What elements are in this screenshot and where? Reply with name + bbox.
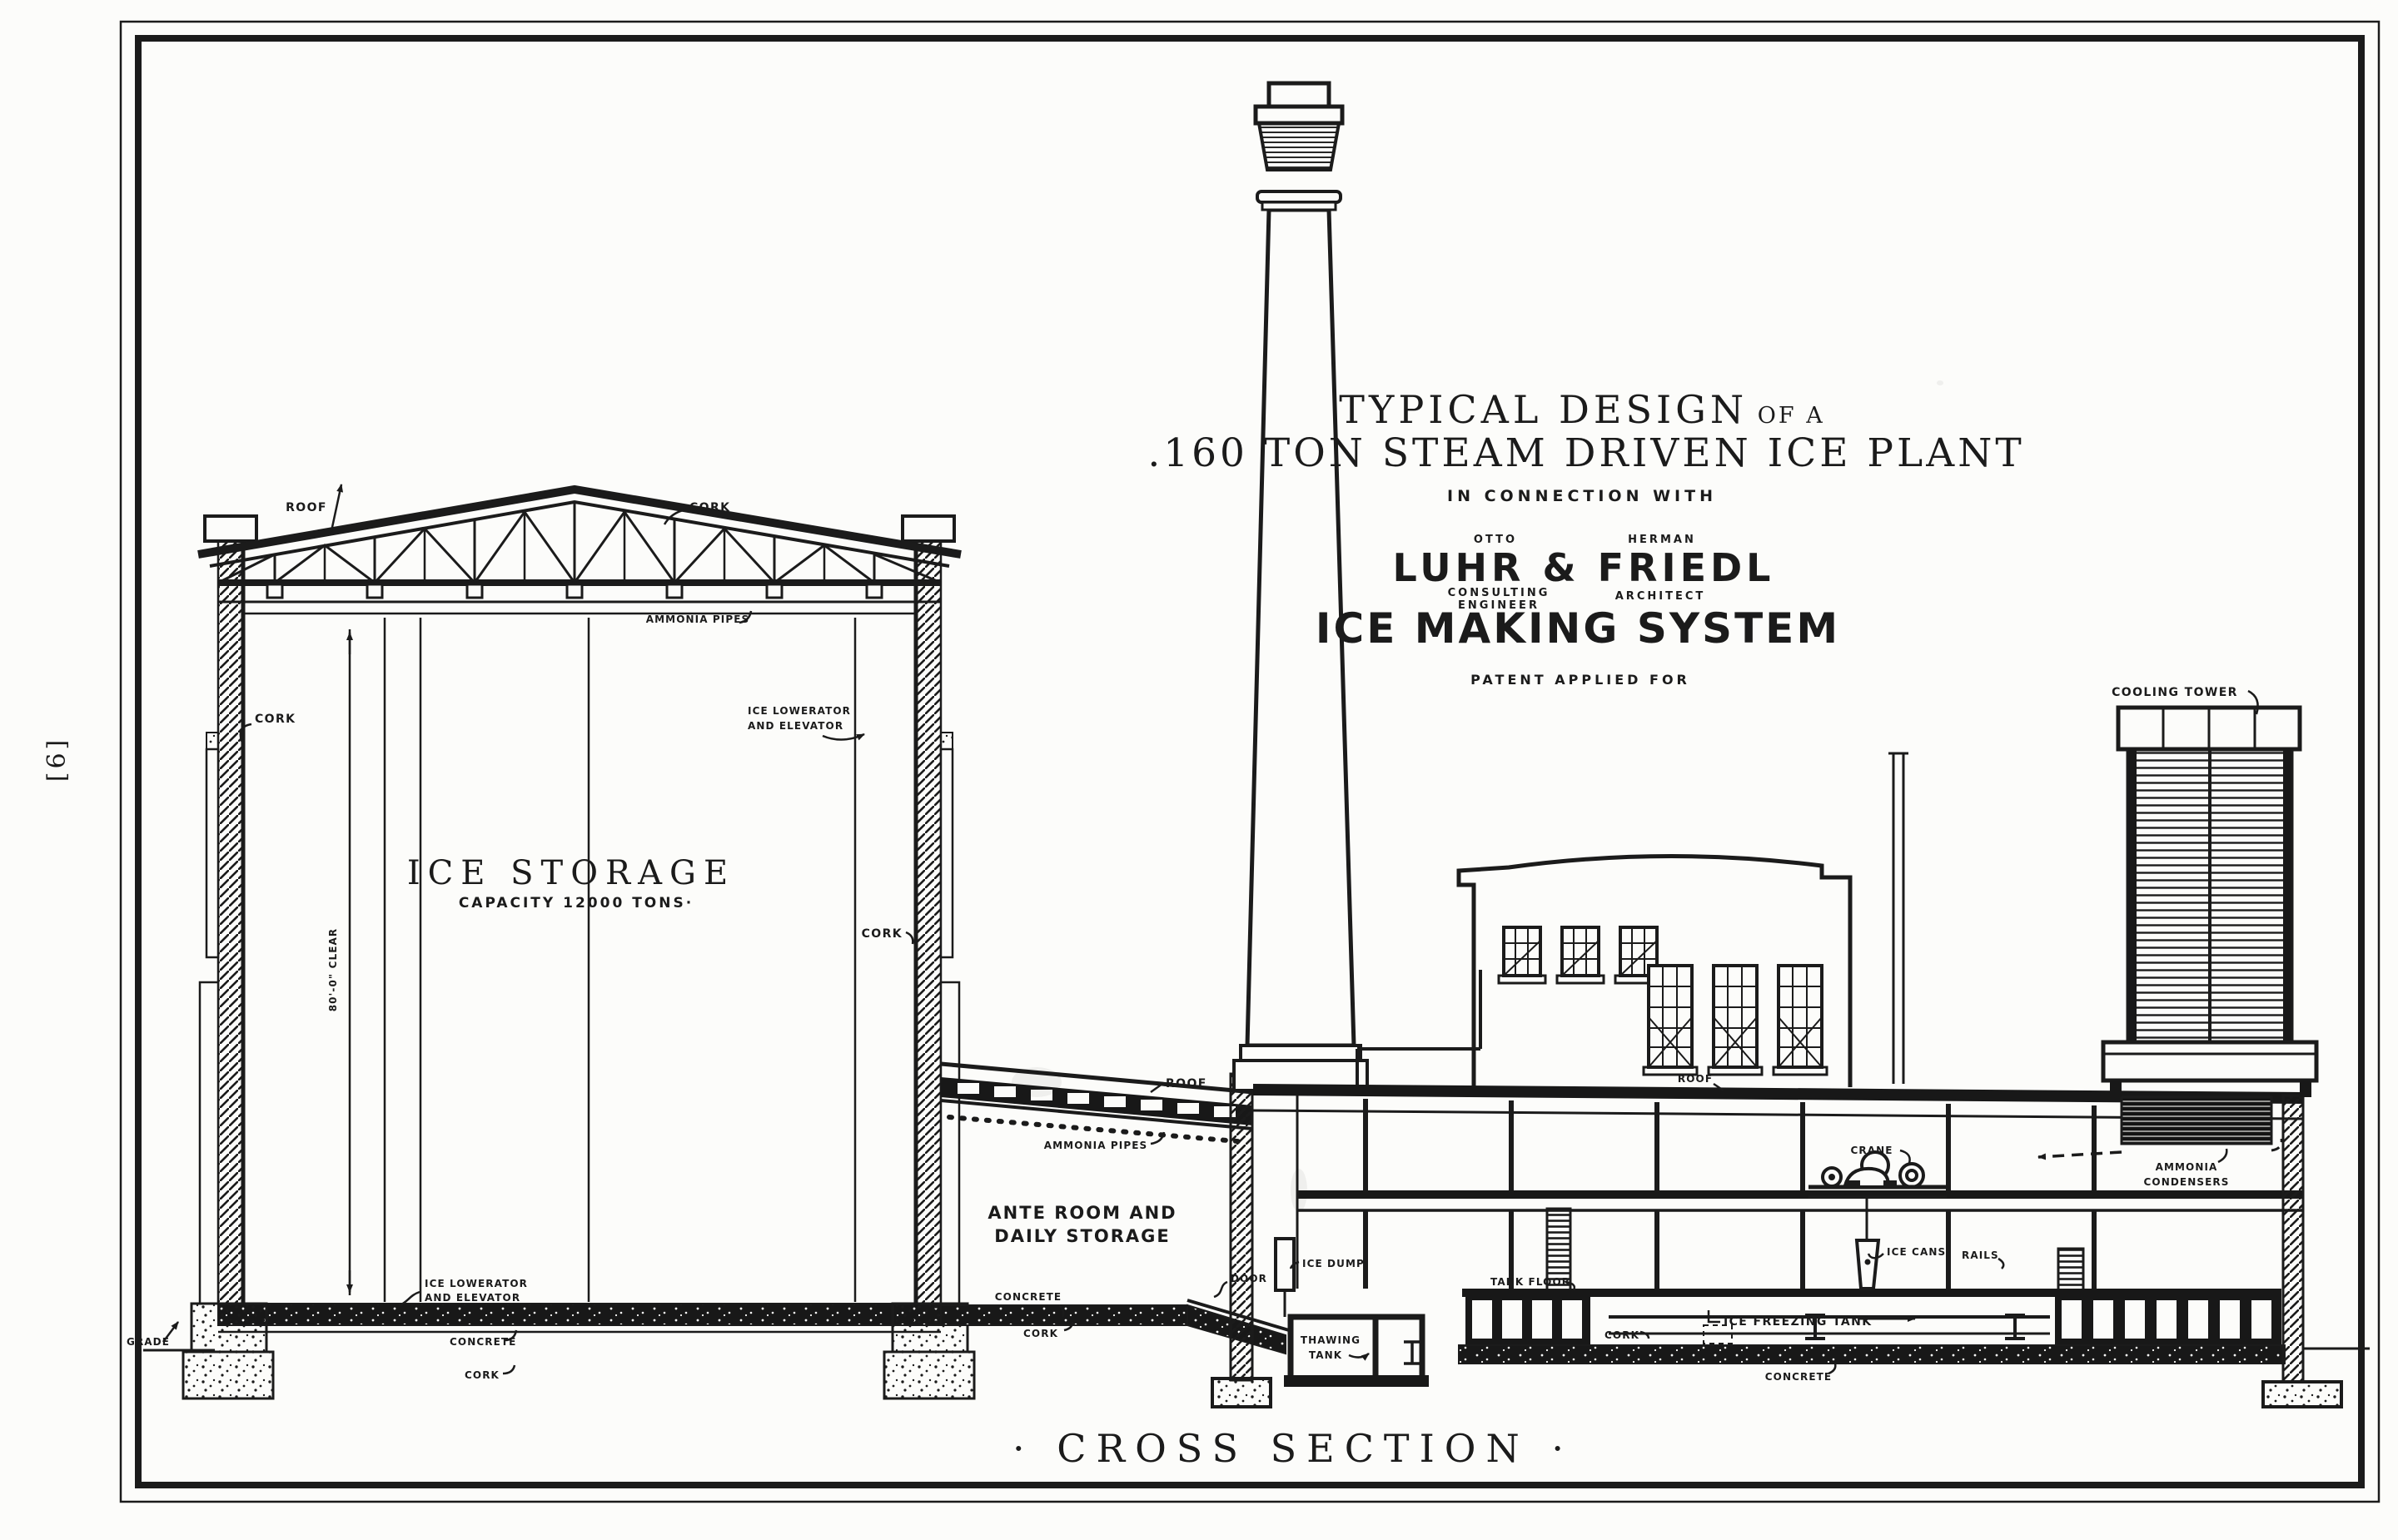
- thawing-tank-label-2: TANK: [1309, 1349, 1342, 1361]
- title-name-otto: OTTO: [1474, 534, 1517, 546]
- ante-ammonia-pipes-label: AMMONIA PIPES: [1044, 1140, 1148, 1151]
- title-name-herman: HERMAN: [1628, 534, 1696, 546]
- cork-right-label: CORK: [862, 927, 903, 941]
- ice-storage-capacity: CAPACITY 12000 TONS·: [459, 895, 694, 912]
- ante-roof-label: ROOF: [1166, 1077, 1207, 1090]
- large-windows: [1644, 966, 1827, 1075]
- cooling-tower-label: COOLING TOWER: [2112, 686, 2238, 699]
- title-firm: LUHR & FRIEDL: [1393, 545, 1775, 590]
- ice-storage-title: ICE STORAGE: [407, 854, 735, 892]
- ice-lowerator-bottom-2: AND ELEVATOR: [425, 1292, 520, 1304]
- crane-figure: [1808, 1152, 1947, 1197]
- cooling-tower: [2103, 691, 2316, 1097]
- plant-concrete-label: CONCRETE: [1765, 1371, 1832, 1383]
- rails-label: RAILS: [1962, 1249, 1999, 1261]
- cork-bottom-label: CORK: [465, 1369, 500, 1381]
- concrete-label-left: CONCRETE: [450, 1336, 516, 1348]
- title-system: ICE MAKING SYSTEM: [1316, 604, 1840, 653]
- title-role-architect: ARCHITECT: [1615, 590, 1706, 603]
- title-line-1: TYPICAL DESIGN OF A: [1339, 387, 1824, 432]
- ammonia-condensers-label-2: CONDENSERS: [2144, 1176, 2230, 1188]
- title-patent: PATENT APPLIED FOR: [1470, 672, 1690, 688]
- ice-freezing-tank-label: ICE FREEZING TANK: [1724, 1315, 1873, 1329]
- tank-floor-label: TANK FLOOR: [1490, 1276, 1570, 1288]
- small-windows: [1499, 927, 1662, 983]
- ice-lowerator-right-2: AND ELEVATOR: [748, 720, 843, 732]
- ice-dump-label: ICE DUMP: [1302, 1258, 1365, 1269]
- clear-height-label: 80'-0" CLEAR: [327, 928, 339, 1012]
- drawing-sheet: [6]: [0, 0, 2398, 1540]
- title-role-consulting: CONSULTING: [1448, 587, 1550, 599]
- ammonia-condensers-label-1: AMMONIA: [2156, 1161, 2218, 1173]
- crane-label: CRANE: [1850, 1145, 1893, 1156]
- ice-lowerator-bottom-1: ICE LOWERATOR: [425, 1278, 528, 1289]
- cork-top-label: CORK: [689, 501, 730, 514]
- roof-label: ROOF: [286, 501, 327, 514]
- sheet-caption: · CROSS SECTION ·: [1012, 1426, 1574, 1471]
- plant-cork-label: CORK: [1604, 1329, 1639, 1341]
- ante-room-name-1: ANTE ROOM AND: [988, 1203, 1177, 1223]
- ice-lowerator-right-1: ICE LOWERATOR: [748, 705, 851, 717]
- ammonia-pipes-label: AMMONIA PIPES: [646, 614, 750, 625]
- cork-left-label: CORK: [255, 713, 296, 726]
- ante-concrete-label: CONCRETE: [995, 1291, 1062, 1303]
- grade-label: GRADE: [127, 1336, 170, 1348]
- thawing-tank-label-1: THAWING: [1301, 1334, 1361, 1346]
- cross-section-drawing: [6]: [0, 0, 2398, 1540]
- ice-cans-label: ICE CANS: [1887, 1246, 1946, 1258]
- ante-cork-label: CORK: [1023, 1328, 1058, 1339]
- title-line-2: .160 TON STEAM DRIVEN ICE PLANT: [1147, 430, 2024, 476]
- ice-storage-building: [143, 484, 974, 1398]
- plant-roof-label: ROOF: [1678, 1073, 1713, 1085]
- ante-room-name-2: DAILY STORAGE: [994, 1226, 1170, 1246]
- page-number: [6]: [42, 737, 72, 782]
- door-label: DOOR: [1231, 1273, 1267, 1284]
- chimney: [1234, 83, 1367, 1090]
- title-line-3: IN CONNECTION WITH: [1447, 487, 1717, 505]
